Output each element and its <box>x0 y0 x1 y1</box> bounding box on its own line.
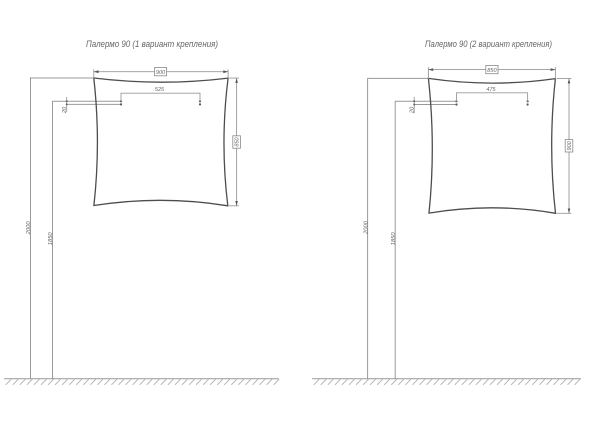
svg-text:2000: 2000 <box>363 220 369 235</box>
svg-text:2000: 2000 <box>26 221 32 236</box>
svg-text:900: 900 <box>156 70 166 76</box>
svg-text:Палермо 90 (2 вариант креплени: Палермо 90 (2 вариант крепления) <box>425 39 552 50</box>
svg-text:475: 475 <box>486 87 496 93</box>
svg-text:900: 900 <box>567 140 573 150</box>
svg-text:Палермо 90 (1 вариант креплени: Палермо 90 (1 вариант крепления) <box>86 39 218 50</box>
svg-text:1850: 1850 <box>391 232 397 246</box>
svg-text:525: 525 <box>155 87 165 93</box>
svg-text:20: 20 <box>62 106 68 114</box>
svg-text:1850: 1850 <box>48 232 54 246</box>
svg-text:20: 20 <box>410 106 416 114</box>
svg-text:850: 850 <box>235 136 241 146</box>
svg-text:850: 850 <box>487 68 497 74</box>
